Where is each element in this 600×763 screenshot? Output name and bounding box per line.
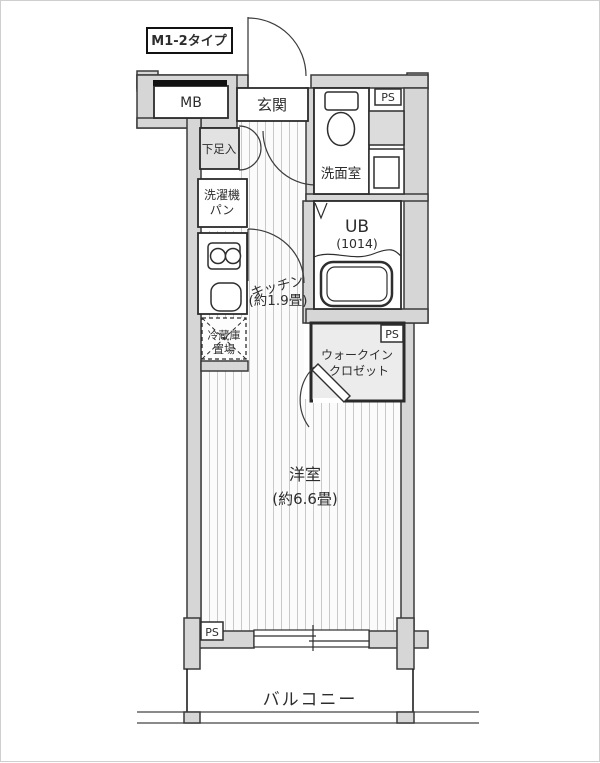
floorplan-page: MB 玄関 下足入 洗濯機 パン 洗面室 PS UB (1014) bbox=[0, 0, 600, 762]
entrance-door-swing bbox=[248, 17, 306, 88]
room-label-shoebox: 下足入 bbox=[202, 142, 237, 156]
washbasin-icon bbox=[369, 149, 404, 194]
room-label-kitchen-size: (約1.9畳) bbox=[248, 293, 307, 309]
room-label-ub: UB bbox=[345, 217, 369, 237]
room-label-western: 洋室 bbox=[289, 465, 321, 484]
ps-label-closet: PS bbox=[385, 328, 399, 341]
wic-label-1: ウォークイン bbox=[321, 348, 393, 362]
room-label-mb: MB bbox=[180, 95, 202, 111]
room-label-genkan: 玄関 bbox=[257, 96, 287, 114]
sink-icon bbox=[211, 283, 241, 311]
room-label-western-size: (約6.6畳) bbox=[272, 490, 338, 508]
meter-box-door bbox=[153, 80, 227, 86]
fridge-label-1: 冷蔵庫 bbox=[208, 328, 241, 342]
bathtub-icon bbox=[321, 262, 392, 306]
floor-hallway bbox=[239, 121, 304, 231]
floorplan-drawing: MB 玄関 下足入 洗濯機 パン 洗面室 PS UB (1014) bbox=[1, 1, 600, 763]
room-label-washroom: 洗面室 bbox=[321, 165, 362, 182]
type-label-text: M1-2タイプ bbox=[151, 34, 227, 49]
ps-label-top: PS bbox=[381, 91, 395, 104]
stove-icon bbox=[208, 243, 241, 269]
balcony-label: バルコニー bbox=[263, 690, 358, 710]
washer-pan-label-2: パン bbox=[210, 203, 235, 217]
wic-label-2: クロゼット bbox=[329, 364, 389, 378]
shaft-box bbox=[369, 111, 404, 145]
room-label-ub-size: (1014) bbox=[336, 236, 378, 251]
washer-pan-label-1: 洗濯機 bbox=[204, 187, 240, 202]
fridge-label-2: 置場 bbox=[213, 343, 235, 356]
ps-label-bottom: PS bbox=[205, 626, 219, 639]
